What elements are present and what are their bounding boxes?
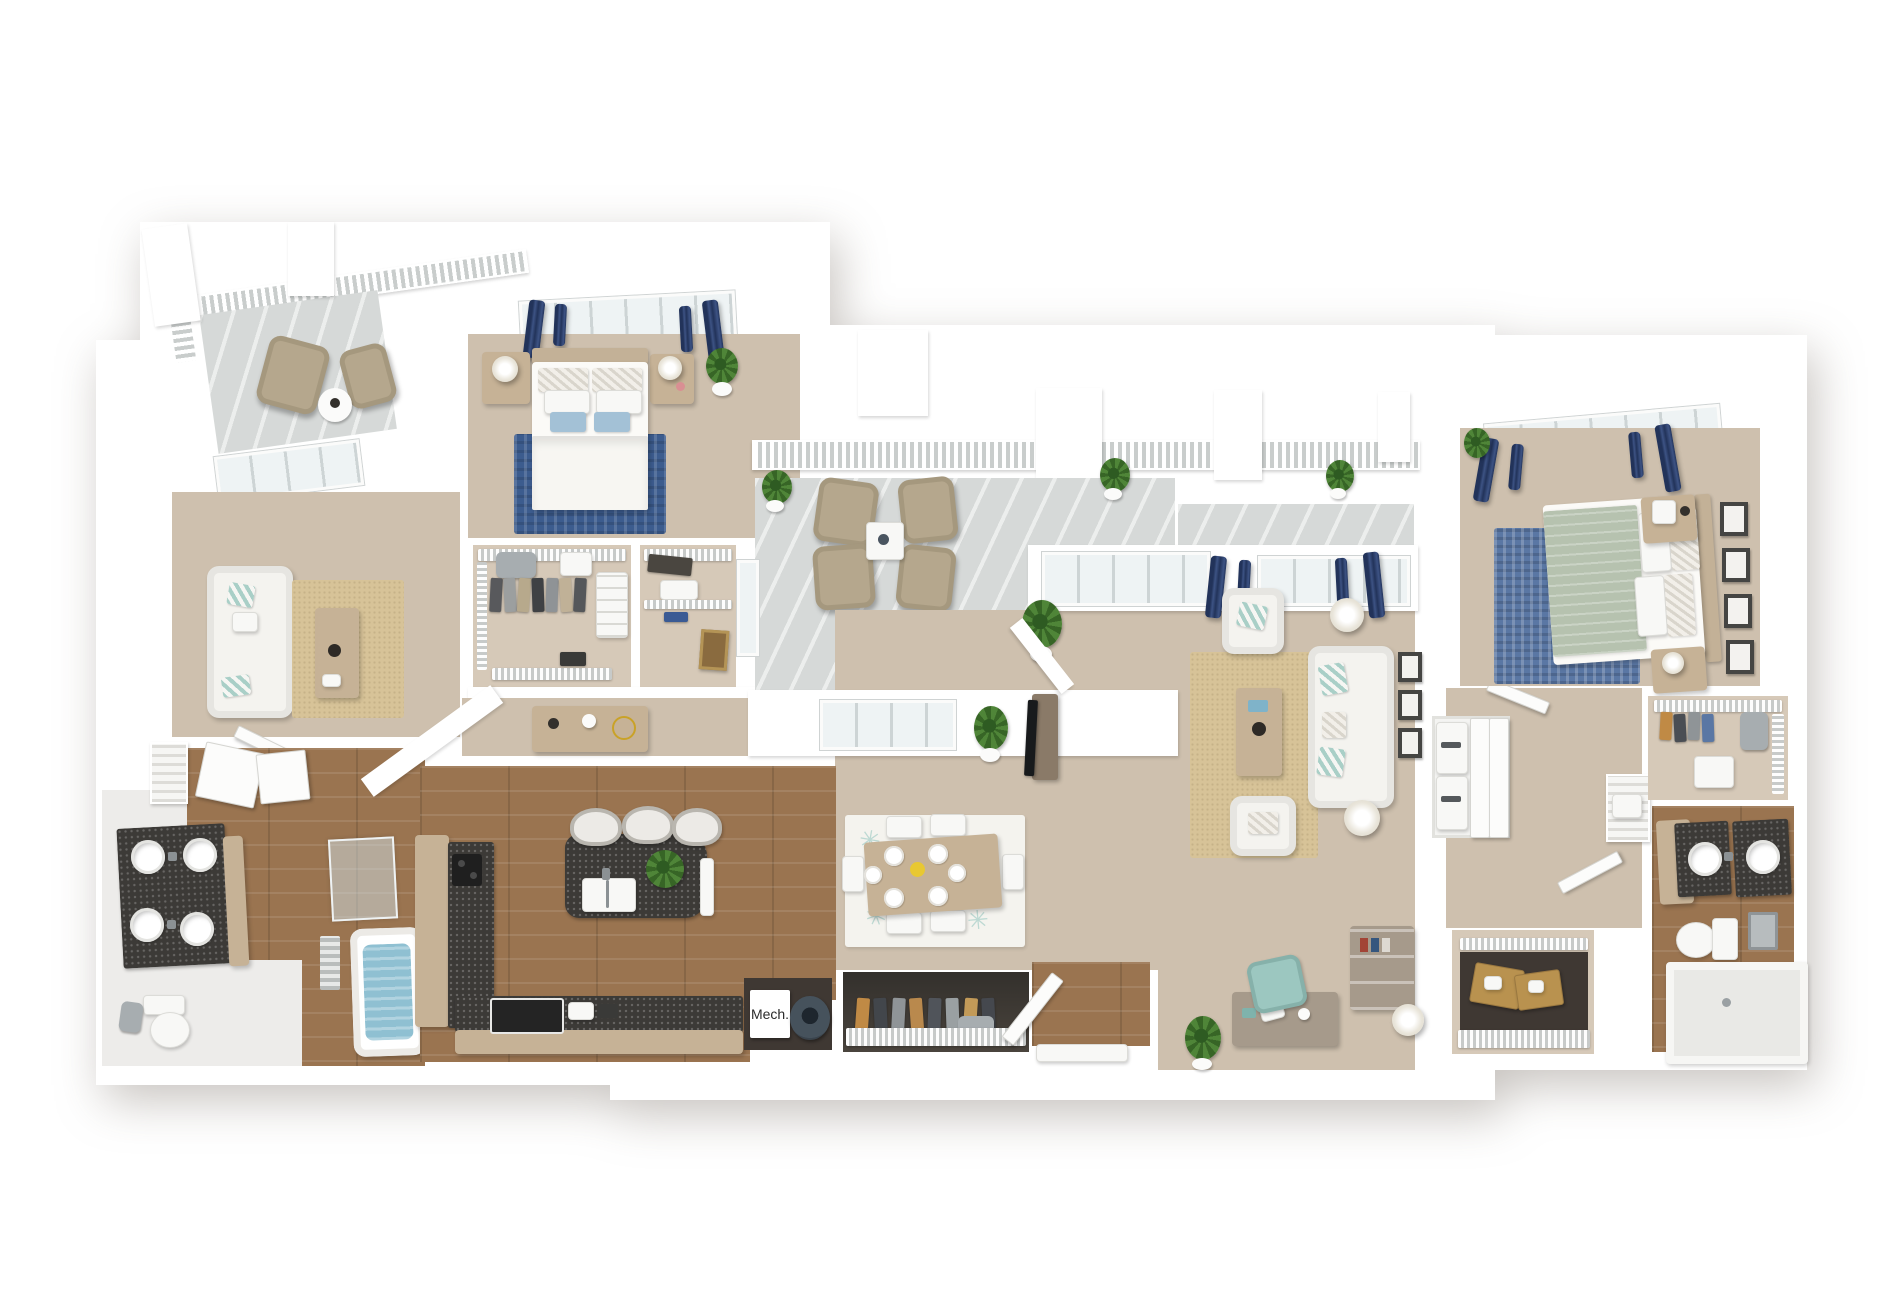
bar-stool bbox=[622, 806, 674, 844]
throw-pillow bbox=[1316, 746, 1346, 777]
desk-chair bbox=[1245, 953, 1309, 1015]
patio-south-wall bbox=[748, 690, 1178, 756]
table-decor bbox=[878, 534, 889, 545]
hall-window bbox=[737, 560, 759, 656]
wall-frame bbox=[1720, 502, 1748, 536]
table-decor bbox=[328, 644, 341, 657]
shower-drain bbox=[1722, 998, 1731, 1007]
dining-chair bbox=[842, 856, 864, 892]
place-setting bbox=[884, 888, 904, 908]
bed-pillow bbox=[1634, 575, 1668, 637]
toilet-bowl bbox=[1676, 922, 1716, 958]
wall-frame bbox=[1398, 690, 1422, 720]
hanging-clothes bbox=[927, 998, 941, 1030]
wire-shelf bbox=[644, 600, 732, 609]
toilet-tank bbox=[1712, 918, 1738, 960]
wire-shelf bbox=[492, 668, 612, 680]
hanging-clothes bbox=[545, 578, 558, 612]
hanging-clothes bbox=[1702, 714, 1715, 742]
hamper bbox=[118, 1001, 144, 1034]
utility-louver-unit bbox=[150, 742, 188, 804]
place-setting bbox=[928, 886, 948, 906]
hanging-clothes bbox=[873, 998, 888, 1031]
plant-pot bbox=[1192, 1058, 1212, 1070]
washer-door bbox=[1441, 742, 1461, 748]
hanging-clothes bbox=[573, 578, 587, 613]
dishwasher bbox=[700, 858, 714, 916]
bed-pillow bbox=[596, 390, 642, 414]
hanging-clothes bbox=[855, 998, 870, 1031]
vessel-sink bbox=[183, 838, 217, 872]
throw-pillow bbox=[1248, 812, 1278, 834]
storage-item bbox=[560, 652, 586, 666]
wall-frame bbox=[1398, 728, 1422, 758]
hanging-clothes bbox=[909, 998, 924, 1031]
table-lamp bbox=[1652, 500, 1676, 524]
book bbox=[1371, 938, 1379, 952]
faucet bbox=[602, 868, 610, 880]
hanging-clothes bbox=[503, 578, 517, 613]
round-sink bbox=[1688, 842, 1722, 876]
table-lamp bbox=[1662, 652, 1684, 674]
vessel-sink bbox=[131, 840, 165, 874]
closet-door bbox=[1470, 718, 1490, 838]
storage-box bbox=[560, 552, 592, 576]
bed-pillow bbox=[592, 368, 642, 392]
wall-frame bbox=[1726, 640, 1754, 674]
shoe-rack bbox=[596, 572, 628, 638]
dining-chair bbox=[930, 910, 966, 932]
bath-mat bbox=[320, 936, 340, 990]
book bbox=[1382, 938, 1390, 952]
table-decor bbox=[322, 674, 341, 687]
wall-frame bbox=[1398, 652, 1422, 682]
storage-box bbox=[660, 580, 698, 600]
dining-chair bbox=[886, 912, 922, 934]
wall-column bbox=[1378, 392, 1410, 462]
floor-lamp bbox=[1330, 598, 1364, 632]
decor bbox=[582, 714, 596, 728]
bed-pillow bbox=[538, 368, 588, 392]
plant-pot bbox=[1104, 488, 1122, 500]
place-setting bbox=[864, 866, 882, 884]
accent-pillow bbox=[594, 412, 630, 432]
shower-glass bbox=[328, 836, 398, 921]
centerpiece bbox=[910, 862, 925, 877]
faucet bbox=[167, 920, 176, 929]
wall-column bbox=[858, 330, 928, 416]
small-appliance bbox=[568, 1002, 594, 1020]
hanging-clothes bbox=[1673, 714, 1686, 743]
patio-chair bbox=[895, 543, 957, 613]
bathtub-water bbox=[362, 943, 413, 1041]
balcony-strip-floor bbox=[1178, 504, 1414, 546]
closet-door bbox=[1489, 718, 1509, 838]
table-decor bbox=[330, 398, 340, 408]
shower bbox=[1666, 962, 1808, 1064]
throw-pillow bbox=[226, 582, 255, 608]
floor-lamp bbox=[1344, 800, 1380, 836]
potted-plant bbox=[1100, 458, 1130, 492]
box-label bbox=[1528, 980, 1544, 993]
decor bbox=[548, 718, 559, 729]
faucet bbox=[1724, 852, 1733, 861]
wall-frame bbox=[1724, 594, 1752, 628]
wall-frame bbox=[1722, 548, 1750, 582]
wire-shelf bbox=[846, 1028, 1026, 1046]
throw-pillow bbox=[1318, 662, 1349, 696]
place-setting bbox=[928, 844, 948, 864]
dryer-door bbox=[1441, 796, 1461, 802]
island-plant bbox=[646, 850, 684, 888]
dryer bbox=[1436, 776, 1468, 830]
wire-shelf bbox=[1772, 714, 1784, 794]
wall-art bbox=[1748, 912, 1778, 950]
storage-bin bbox=[664, 612, 688, 622]
potted-plant bbox=[974, 706, 1008, 750]
curtain bbox=[553, 304, 567, 347]
island-sink bbox=[582, 878, 636, 912]
potted-plant bbox=[1464, 428, 1490, 458]
table-lamp bbox=[492, 356, 518, 382]
suitcase bbox=[496, 552, 536, 578]
coffee-maker bbox=[598, 1004, 618, 1018]
bed-blanket bbox=[1543, 505, 1647, 657]
hanging-clothes bbox=[489, 578, 503, 613]
wire-shelf bbox=[477, 562, 487, 670]
throw-pillow bbox=[221, 674, 252, 698]
plant-pot bbox=[980, 748, 1000, 762]
accent-pillow bbox=[550, 412, 586, 432]
place-setting bbox=[884, 846, 904, 866]
kitchen-cabinets bbox=[415, 835, 449, 1027]
decor bbox=[1680, 506, 1690, 516]
bed-pillow bbox=[544, 390, 590, 414]
decor-sphere bbox=[612, 716, 636, 740]
entry-threshold bbox=[1036, 1044, 1128, 1062]
curtain bbox=[679, 306, 693, 353]
linen-closet-door bbox=[256, 750, 311, 805]
bar-stool bbox=[570, 808, 622, 846]
wire-shelf bbox=[1460, 938, 1588, 950]
hanging-clothes bbox=[1688, 712, 1701, 740]
dining-chair bbox=[930, 814, 966, 836]
washer bbox=[1436, 722, 1468, 774]
burner bbox=[458, 860, 465, 867]
hvac-unit bbox=[1612, 794, 1642, 818]
faucet bbox=[168, 852, 177, 861]
vessel-sink bbox=[130, 908, 164, 942]
dining-chair bbox=[1002, 854, 1024, 890]
potted-plant bbox=[1185, 1016, 1221, 1060]
water-heater bbox=[790, 996, 830, 1040]
potted-plant bbox=[706, 348, 738, 384]
vessel-sink bbox=[180, 912, 214, 946]
potted-plant bbox=[762, 470, 792, 504]
table-lamp bbox=[658, 356, 682, 380]
bed-duvet bbox=[532, 436, 648, 510]
hanging-clothes bbox=[517, 578, 531, 613]
patio-glass-door bbox=[820, 700, 956, 750]
hanging-clothes bbox=[891, 998, 906, 1031]
wall bbox=[468, 687, 768, 698]
dining-chair bbox=[886, 816, 922, 838]
bar-stool bbox=[672, 808, 722, 846]
box-label bbox=[1484, 976, 1502, 990]
plant-pot bbox=[712, 382, 732, 396]
burner bbox=[470, 872, 477, 879]
bed-pillow bbox=[1664, 573, 1696, 637]
hanging-clothes bbox=[1659, 712, 1672, 741]
patio-chair bbox=[897, 475, 959, 545]
hanging-clothes bbox=[559, 578, 573, 613]
throw-pillow bbox=[232, 612, 258, 632]
hanging-clothes bbox=[531, 578, 544, 612]
rug-pattern-icon: ✳ bbox=[966, 906, 990, 934]
floor-plan: ✳ ✳ ✳ ✳ Mech. bbox=[0, 0, 1897, 1304]
floor-lamp bbox=[1392, 1004, 1424, 1036]
throw-pillow bbox=[1322, 712, 1346, 738]
cooktop bbox=[452, 854, 482, 886]
tissue-box bbox=[1248, 700, 1268, 712]
book bbox=[1360, 938, 1368, 952]
wall-column bbox=[1036, 388, 1102, 488]
range bbox=[490, 998, 564, 1034]
plant-pot bbox=[766, 500, 784, 512]
decor bbox=[676, 382, 685, 391]
wall-column bbox=[1214, 390, 1262, 480]
linen-closet-door bbox=[195, 741, 265, 808]
leaning-art-frame bbox=[699, 629, 730, 671]
wall-column bbox=[288, 222, 334, 296]
notebook bbox=[1242, 1008, 1256, 1018]
desk-decor bbox=[1298, 1008, 1310, 1020]
wire-shelf bbox=[1458, 1030, 1590, 1048]
wire-shelf bbox=[1654, 700, 1782, 712]
mech-room-label: Mech. bbox=[750, 990, 790, 1038]
sink-divider bbox=[606, 880, 609, 908]
round-sink bbox=[1746, 840, 1780, 874]
plant-pot bbox=[1330, 488, 1346, 499]
storage-bin bbox=[1740, 712, 1768, 750]
table-decor bbox=[1252, 722, 1266, 736]
toilet-bowl bbox=[150, 1012, 190, 1048]
place-setting bbox=[948, 864, 966, 882]
closet-dresser bbox=[1694, 756, 1734, 788]
living-window bbox=[1042, 552, 1210, 606]
